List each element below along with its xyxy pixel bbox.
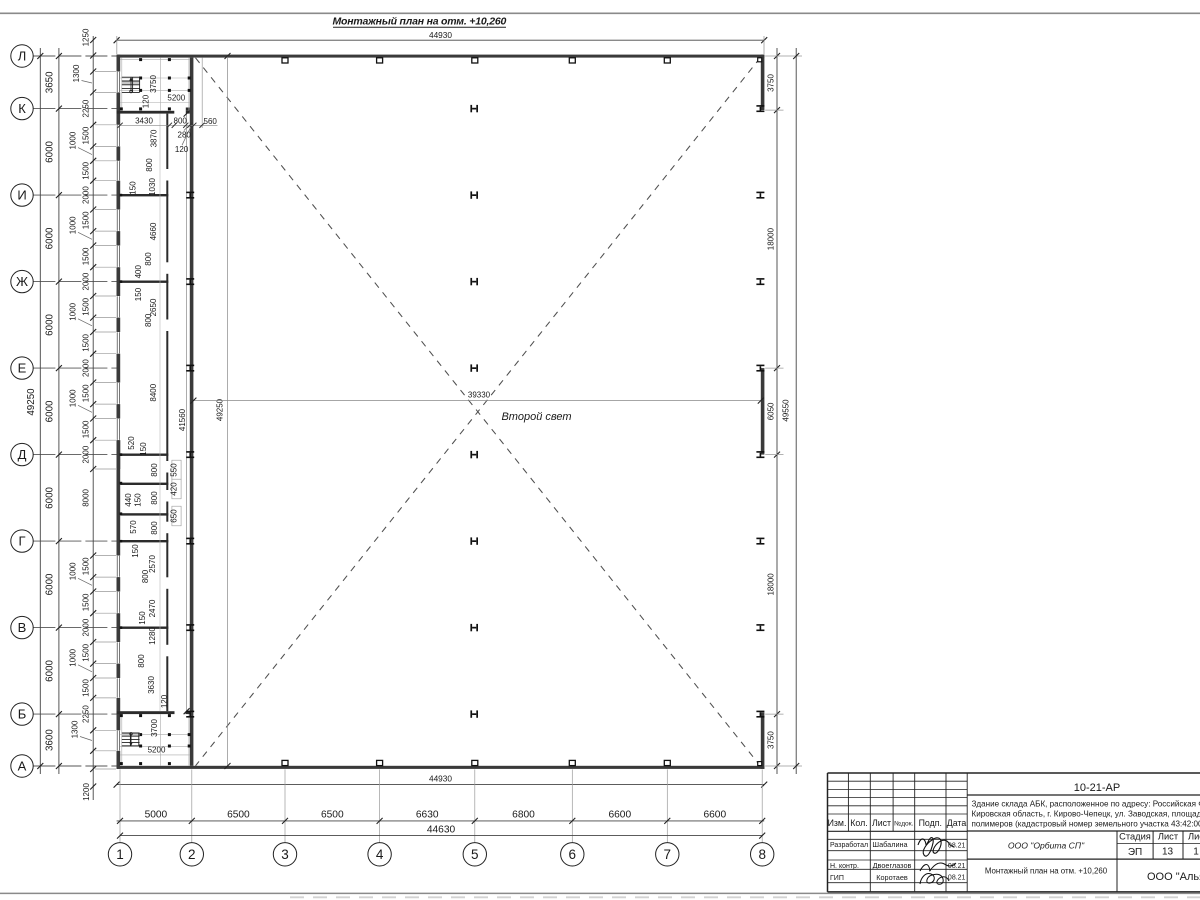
svg-text:К: К xyxy=(18,101,26,116)
svg-text:6000: 6000 xyxy=(45,140,56,162)
svg-text:2000: 2000 xyxy=(82,272,91,290)
svg-text:1500: 1500 xyxy=(82,333,91,351)
svg-text:1000: 1000 xyxy=(69,131,78,149)
svg-text:2000: 2000 xyxy=(82,618,91,636)
svg-text:400: 400 xyxy=(134,264,143,278)
svg-text:1500: 1500 xyxy=(82,557,91,575)
svg-text:13: 13 xyxy=(1162,847,1174,858)
svg-text:570: 570 xyxy=(129,520,138,534)
svg-text:120: 120 xyxy=(160,694,169,708)
svg-text:08.21: 08.21 xyxy=(948,843,966,850)
svg-text:Второй свет: Второй свет xyxy=(501,411,571,423)
svg-text:ГИП: ГИП xyxy=(830,875,844,882)
svg-text:Н. контр.: Н. контр. xyxy=(830,863,859,870)
svg-text:120: 120 xyxy=(142,94,151,108)
svg-text:8000: 8000 xyxy=(82,488,91,506)
svg-text:1500: 1500 xyxy=(82,593,91,611)
svg-text:Подп.: Подп. xyxy=(919,818,942,828)
svg-text:Коротаев: Коротаев xyxy=(876,873,908,882)
svg-text:Кировская область, г. Кирово-Ч: Кировская область, г. Кирово-Чепецк, ул.… xyxy=(972,809,1200,818)
svg-text:08.21: 08.21 xyxy=(948,875,966,882)
svg-text:1200: 1200 xyxy=(82,783,91,801)
svg-text:8: 8 xyxy=(758,847,766,862)
svg-text:2000: 2000 xyxy=(82,359,91,377)
svg-text:2000: 2000 xyxy=(82,186,91,204)
svg-text:1500: 1500 xyxy=(82,126,91,144)
svg-text:В: В xyxy=(18,620,27,635)
svg-text:800: 800 xyxy=(150,491,159,505)
svg-text:7: 7 xyxy=(664,847,672,862)
svg-text:2250: 2250 xyxy=(82,705,91,723)
svg-text:3700: 3700 xyxy=(150,719,159,737)
svg-text:6000: 6000 xyxy=(45,573,56,595)
svg-text:3430: 3430 xyxy=(135,116,153,125)
svg-text:550: 550 xyxy=(170,463,179,477)
svg-text:18000: 18000 xyxy=(766,227,775,250)
svg-text:08.21: 08.21 xyxy=(948,863,966,870)
svg-text:Ж: Ж xyxy=(16,274,28,289)
svg-text:44630: 44630 xyxy=(427,824,456,835)
svg-text:1500: 1500 xyxy=(82,211,91,229)
svg-text:5: 5 xyxy=(471,847,479,862)
svg-text:3750: 3750 xyxy=(766,731,775,749)
svg-text:44930: 44930 xyxy=(429,30,452,40)
svg-text:800: 800 xyxy=(137,654,146,668)
svg-text:Двоеглазов: Двоеглазов xyxy=(873,861,912,870)
svg-text:Шабалина: Шабалина xyxy=(872,840,908,849)
svg-text:1500: 1500 xyxy=(82,679,91,697)
svg-text:6000: 6000 xyxy=(45,400,56,422)
svg-text:1000: 1000 xyxy=(69,302,78,320)
svg-text:полимеров (кадастровый номер з: полимеров (кадастровый номер земельного … xyxy=(972,819,1200,828)
svg-text:800: 800 xyxy=(174,116,188,125)
svg-text:5000: 5000 xyxy=(145,809,168,820)
svg-text:4660: 4660 xyxy=(149,222,158,240)
svg-text:1280: 1280 xyxy=(148,627,157,645)
svg-text:3870: 3870 xyxy=(150,129,159,147)
svg-text:520: 520 xyxy=(127,436,136,450)
svg-text:Лис: Лис xyxy=(1188,832,1200,842)
svg-text:Г: Г xyxy=(18,534,25,549)
svg-text:44930: 44930 xyxy=(429,773,452,783)
svg-text:Здание склада АБК, расположенн: Здание склада АБК, расположенное по адре… xyxy=(972,799,1200,808)
svg-text:150: 150 xyxy=(131,544,140,558)
svg-text:3600: 3600 xyxy=(45,729,56,751)
svg-text:Лист: Лист xyxy=(1158,832,1179,842)
svg-text:2000: 2000 xyxy=(82,445,91,463)
svg-text:280: 280 xyxy=(178,130,192,139)
svg-text:Изм.: Изм. xyxy=(828,818,847,828)
svg-text:2: 2 xyxy=(188,847,196,862)
svg-text:440: 440 xyxy=(124,493,133,507)
svg-text:2470: 2470 xyxy=(148,599,157,617)
svg-text:Д: Д xyxy=(18,447,27,462)
svg-text:150: 150 xyxy=(129,181,138,195)
svg-text:6630: 6630 xyxy=(416,809,439,820)
svg-text:5200: 5200 xyxy=(148,746,166,755)
svg-text:800: 800 xyxy=(150,463,159,477)
svg-text:41560: 41560 xyxy=(178,408,187,431)
svg-text:5200: 5200 xyxy=(167,94,185,103)
svg-text:800: 800 xyxy=(150,521,159,535)
svg-text:1500: 1500 xyxy=(82,297,91,315)
svg-text:800: 800 xyxy=(145,158,154,172)
svg-text:Лист: Лист xyxy=(872,818,891,828)
svg-text:А: А xyxy=(18,759,27,774)
svg-text:150: 150 xyxy=(138,611,147,625)
svg-text:ЭП: ЭП xyxy=(1128,847,1142,858)
svg-text:ООО "Альянс: ООО "Альянс xyxy=(1147,871,1200,883)
svg-text:1500: 1500 xyxy=(82,161,91,179)
svg-text:150: 150 xyxy=(134,493,143,507)
svg-text:6800: 6800 xyxy=(512,809,535,820)
svg-text:3650: 3650 xyxy=(45,71,56,93)
svg-text:1300: 1300 xyxy=(72,64,81,82)
svg-text:Е: Е xyxy=(18,361,27,376)
svg-text:Л: Л xyxy=(18,49,27,64)
svg-text:1000: 1000 xyxy=(69,216,78,234)
svg-text:6000: 6000 xyxy=(45,313,56,335)
svg-text:1500: 1500 xyxy=(82,643,91,661)
svg-text:1: 1 xyxy=(116,847,124,862)
svg-text:№док.: №док. xyxy=(894,821,913,828)
svg-text:6000: 6000 xyxy=(45,659,56,681)
svg-text:1000: 1000 xyxy=(69,389,78,407)
svg-text:1030: 1030 xyxy=(148,178,157,196)
svg-text:800: 800 xyxy=(144,313,153,327)
svg-text:6050: 6050 xyxy=(766,402,775,420)
svg-text:6000: 6000 xyxy=(45,486,56,508)
svg-text:1250: 1250 xyxy=(82,28,91,46)
svg-text:1500: 1500 xyxy=(82,247,91,265)
svg-text:1000: 1000 xyxy=(69,562,78,580)
svg-text:18000: 18000 xyxy=(766,573,775,596)
svg-text:6600: 6600 xyxy=(703,809,726,820)
svg-text:1500: 1500 xyxy=(82,420,91,438)
svg-text:Б: Б xyxy=(18,707,27,722)
svg-text:Дата: Дата xyxy=(947,818,967,828)
svg-text:1300: 1300 xyxy=(71,720,80,738)
svg-text:1000: 1000 xyxy=(69,648,78,666)
svg-text:3: 3 xyxy=(281,847,289,862)
svg-text:560: 560 xyxy=(204,117,218,126)
svg-text:Кол.: Кол. xyxy=(850,818,867,828)
svg-text:49250: 49250 xyxy=(26,388,37,416)
svg-text:3630: 3630 xyxy=(147,676,156,694)
svg-text:800: 800 xyxy=(141,569,150,583)
svg-text:6600: 6600 xyxy=(608,809,631,820)
svg-text:1: 1 xyxy=(1193,847,1199,858)
svg-text:150: 150 xyxy=(134,287,143,301)
svg-text:2250: 2250 xyxy=(82,99,91,117)
svg-text:1500: 1500 xyxy=(82,384,91,402)
svg-text:3750: 3750 xyxy=(149,75,158,93)
svg-text:39330: 39330 xyxy=(468,390,491,399)
svg-text:Монтажный план на отм. +10,260: Монтажный план на отм. +10,260 xyxy=(332,15,506,27)
svg-text:И: И xyxy=(17,188,26,203)
svg-text:6000: 6000 xyxy=(45,227,56,249)
svg-text:3750: 3750 xyxy=(766,74,775,92)
svg-text:650: 650 xyxy=(170,509,179,523)
svg-text:6500: 6500 xyxy=(321,809,344,820)
svg-text:8400: 8400 xyxy=(149,383,158,401)
svg-text:Монтажный план на отм. +10,260: Монтажный план на отм. +10,260 xyxy=(985,866,1108,875)
svg-text:150: 150 xyxy=(139,442,148,456)
svg-text:420: 420 xyxy=(170,482,179,496)
svg-text:Стадия: Стадия xyxy=(1119,832,1151,842)
svg-text:49550: 49550 xyxy=(781,399,790,422)
svg-text:49250: 49250 xyxy=(215,398,224,421)
svg-text:ООО "Орбита СП": ООО "Орбита СП" xyxy=(1008,841,1085,851)
svg-text:4: 4 xyxy=(376,847,384,862)
svg-text:10-21-АР: 10-21-АР xyxy=(1074,782,1120,794)
svg-text:800: 800 xyxy=(144,252,153,266)
svg-text:Разработал: Разработал xyxy=(830,841,868,849)
svg-text:120: 120 xyxy=(175,145,189,154)
svg-text:6500: 6500 xyxy=(227,809,250,820)
svg-text:6: 6 xyxy=(569,847,577,862)
